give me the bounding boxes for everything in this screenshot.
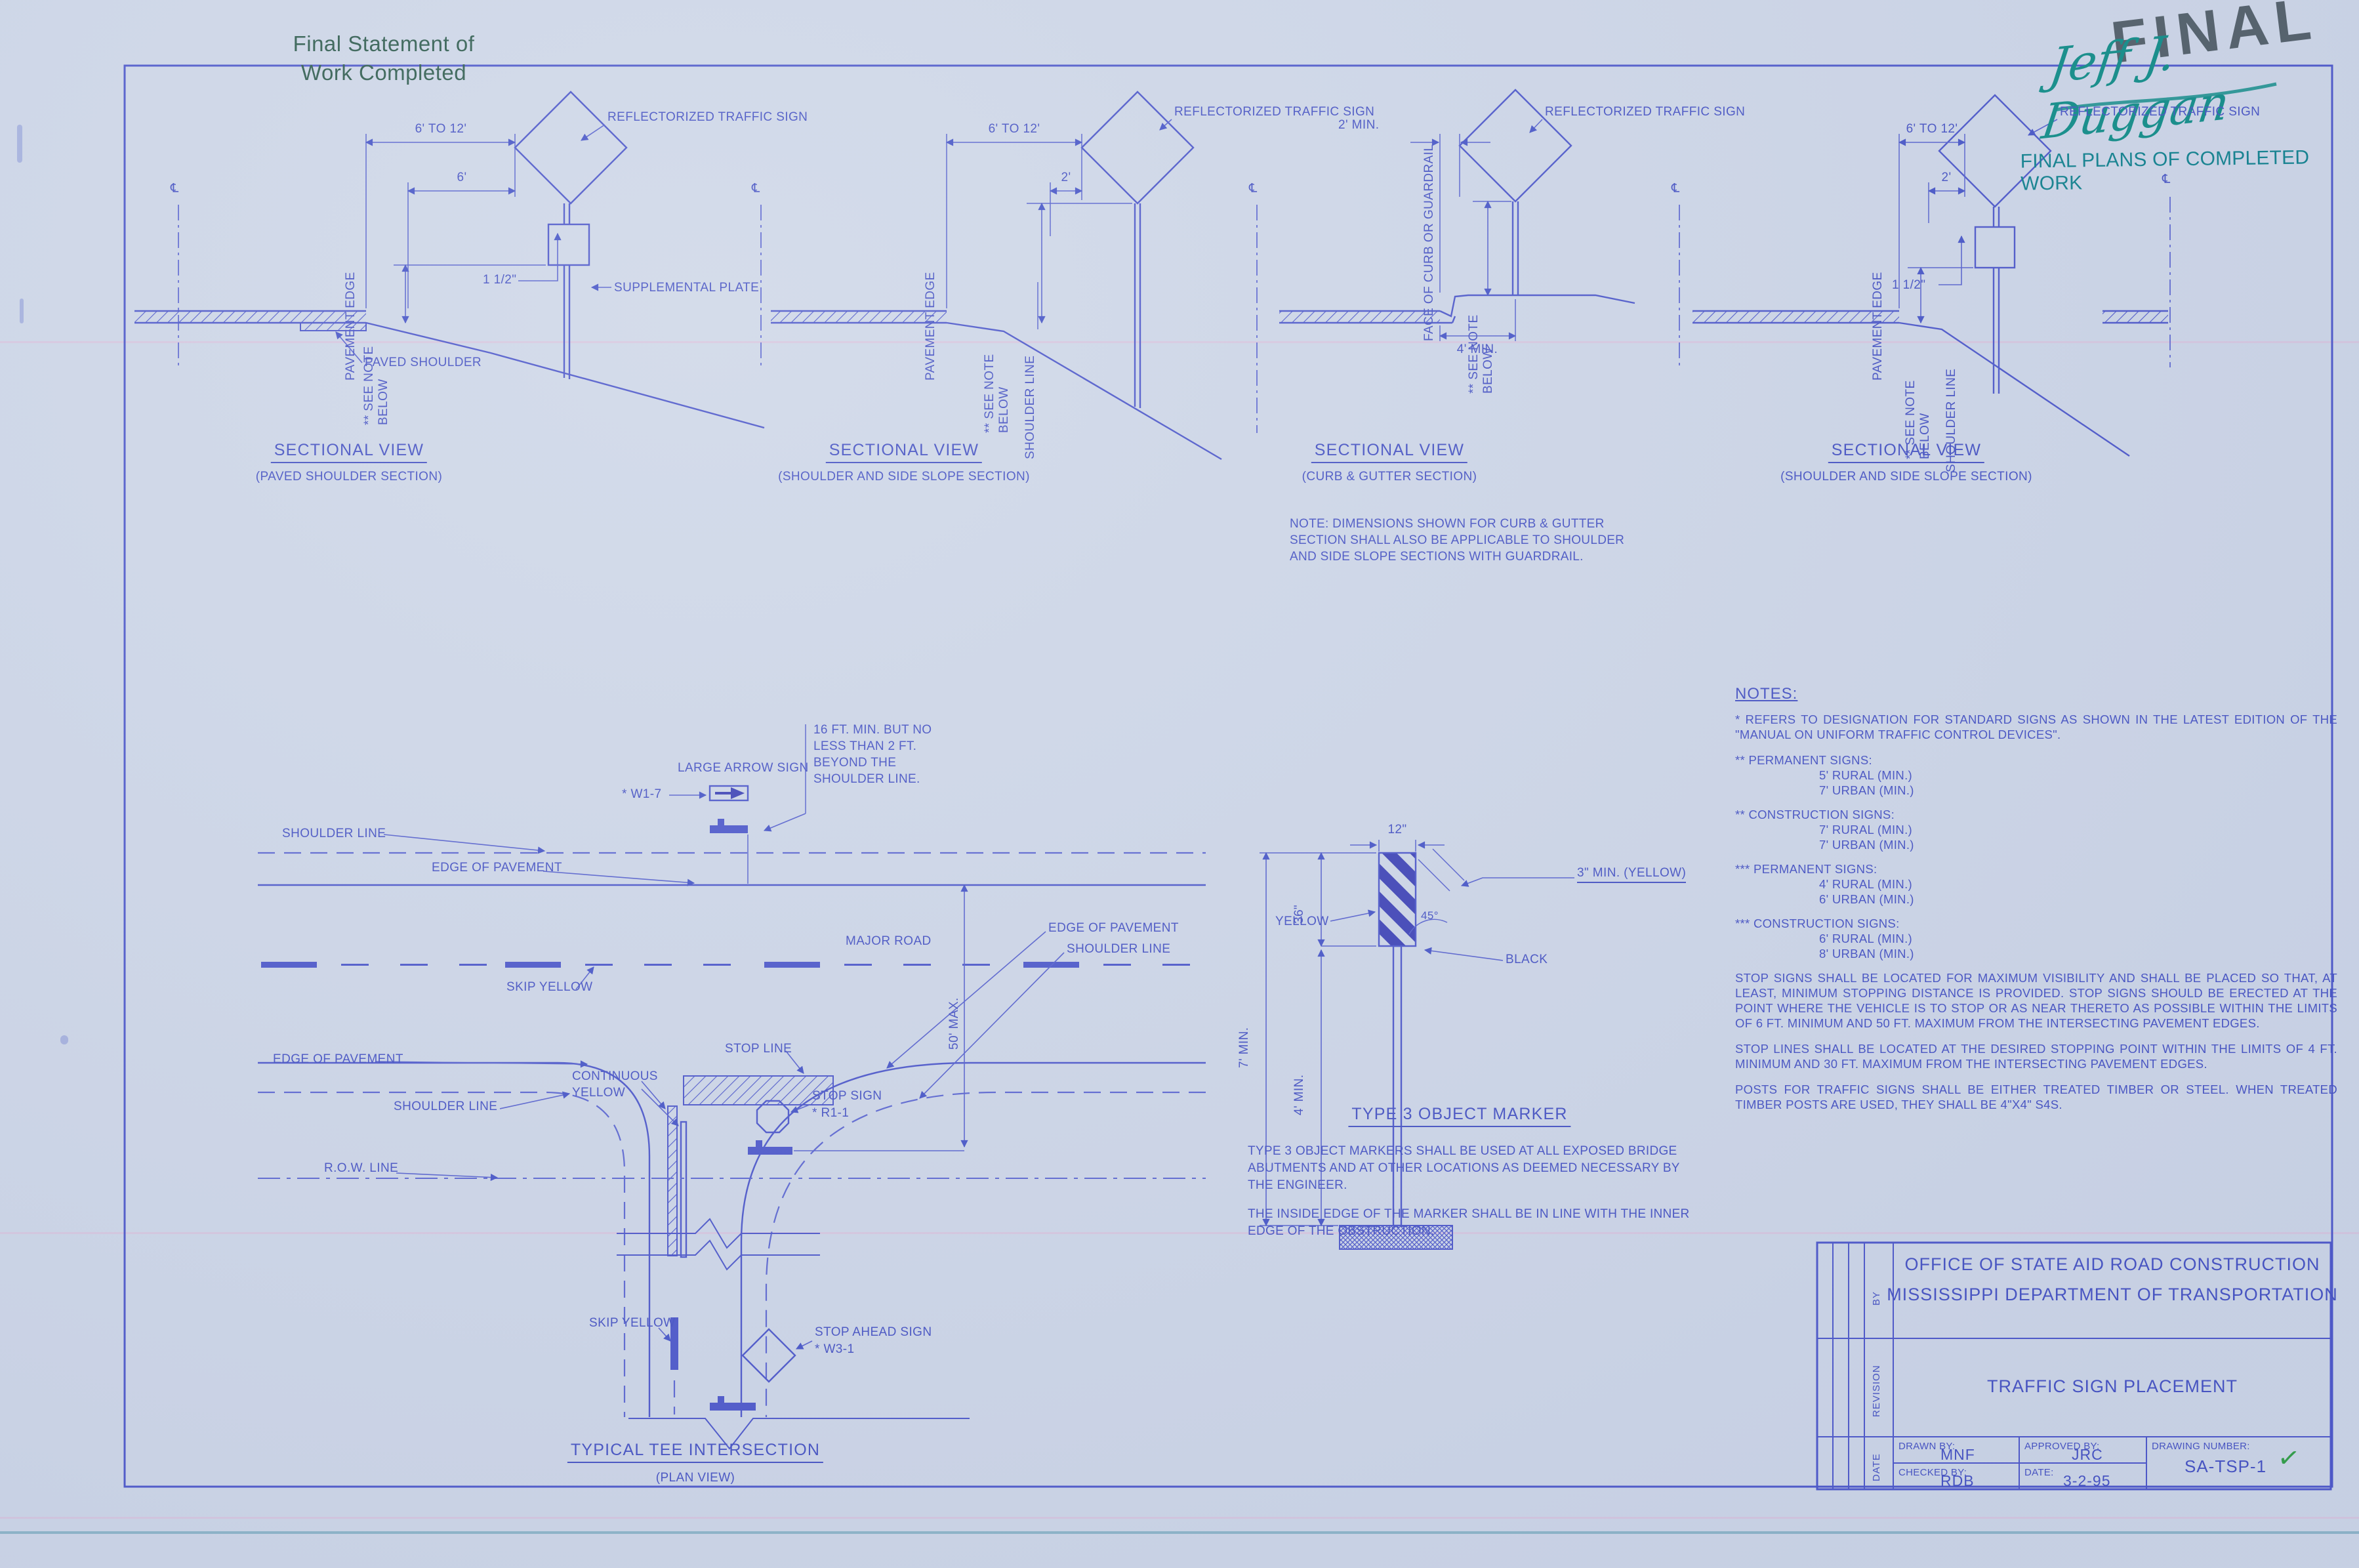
plan-major-road-label: MAJOR ROAD xyxy=(846,934,932,949)
marker-yellow-label: YELLOW xyxy=(1275,915,1329,929)
plan-stop-ahead-label: STOP AHEAD SIGN xyxy=(815,1325,932,1340)
v2-title: SECTIONAL VIEW xyxy=(826,441,982,463)
notes-ref: * REFERS TO DESIGNATION FOR STANDARD SIG… xyxy=(1735,712,2337,742)
plan-50max-dim: 50' MAX. xyxy=(947,997,962,1050)
green-checkmark: ✓ xyxy=(2276,1442,2302,1475)
v1-title: SECTIONAL VIEW xyxy=(271,441,427,463)
centerline-symbol: ℄ xyxy=(1249,181,1258,196)
v2-pavement-edge-label: PAVEMENT EDGE xyxy=(924,272,938,381)
agency-line2: MISSISSIPPI DEPARTMENT OF TRANSPORTATION xyxy=(1887,1285,2338,1305)
agency-line1: OFFICE OF STATE AID ROAD CONSTRUCTION xyxy=(1904,1254,2320,1275)
group-line: 7' RURAL (MIN.) xyxy=(1819,822,2337,837)
v1-dim-6: 6' xyxy=(457,171,467,185)
plan-w3-1-label: * W3-1 xyxy=(815,1342,854,1357)
notes-group-permanent-3star: *** PERMANENT SIGNS: 4' RURAL (MIN.) 6' … xyxy=(1735,861,2337,907)
marker-note-line: THE ENGINEER. xyxy=(1248,1177,1690,1194)
group-line: 7' URBAN (MIN.) xyxy=(1819,783,2337,798)
column-date-label: DATE xyxy=(1871,1453,1882,1481)
v4-dim-2: 2' xyxy=(1942,171,1952,185)
centerline-symbol: ℄ xyxy=(1672,181,1680,196)
marker-dim-7min: 7' MIN. xyxy=(1237,1027,1252,1068)
group-head: *** CONSTRUCTION SIGNS: xyxy=(1735,916,2337,931)
curb-note-line3: AND SIDE SLOPE SECTIONS WITH GUARDRAIL. xyxy=(1290,548,1624,565)
plan-edge-pavement-right-label: EDGE OF PAVEMENT xyxy=(1048,921,1179,936)
group-head: ** PERMANENT SIGNS: xyxy=(1735,753,2337,768)
v2-see-note-label: ** SEE NOTE BELOW xyxy=(983,354,1012,433)
plan-row-line-label: R.O.W. LINE xyxy=(324,1161,398,1176)
marker-black-label: BLACK xyxy=(1506,953,1548,967)
curb-gutter-note: NOTE: DIMENSIONS SHOWN FOR CURB & GUTTER… xyxy=(1290,516,1624,565)
v1-dim-6to12: 6' TO 12' xyxy=(415,122,467,136)
date-value: 3-2-95 xyxy=(2063,1472,2110,1490)
notes-stop-lines: STOP LINES SHALL BE LOCATED AT THE DESIR… xyxy=(1735,1041,2337,1071)
group-head: ** CONSTRUCTION SIGNS: xyxy=(1735,807,2337,822)
plan-shoulder-line-left-label: SHOULDER LINE xyxy=(394,1100,497,1114)
column-by-label: BY xyxy=(1871,1291,1882,1306)
setback-line3: BEYOND THE xyxy=(813,754,932,771)
v3-dim-2min: 2' MIN. xyxy=(1338,118,1379,133)
approved-by-value: JRC xyxy=(2072,1446,2103,1464)
v3-curb-face-label: FACE OF CURB OR GUARDRAIL xyxy=(1422,144,1437,341)
curb-note-line2: SECTION SHALL ALSO BE APPLICABLE TO SHOU… xyxy=(1290,532,1624,548)
sheet-title: TRAFFIC SIGN PLACEMENT xyxy=(1987,1376,2238,1397)
v4-reflectorized-sign-label: REFLECTORIZED TRAFFIC SIGN xyxy=(2060,105,2260,119)
marker-note-line: THE INSIDE EDGE OF THE MARKER SHALL BE I… xyxy=(1248,1206,1690,1223)
v1-subtitle: (PAVED SHOULDER SECTION) xyxy=(256,470,442,484)
column-revision-label: REVISION xyxy=(1871,1365,1882,1417)
spacer xyxy=(1248,1194,1690,1206)
plan-edge-pavement-top-label: EDGE OF PAVEMENT xyxy=(432,861,562,875)
final-statement-stamp-line2: Work Completed xyxy=(301,60,466,85)
v1-supplemental-plate-label: SUPPLEMENTAL PLATE xyxy=(614,281,759,295)
final-plans-stamp: FINAL PLANS OF COMPLETED WORK xyxy=(2021,146,2359,195)
v4-subtitle: (SHOULDER AND SIDE SLOPE SECTION) xyxy=(1780,470,2032,484)
drawing-number-label: DRAWING NUMBER: xyxy=(2152,1441,2250,1452)
notes-stop-signs: STOP SIGNS SHALL BE LOCATED FOR MAXIMUM … xyxy=(1735,970,2337,1031)
group-line: 7' URBAN (MIN.) xyxy=(1819,837,2337,852)
plan-subtitle: (PLAN VIEW) xyxy=(656,1471,735,1485)
v4-dim-plate-gap: 1 1/2" xyxy=(1892,278,1925,293)
v1-reflectorized-sign-label: REFLECTORIZED TRAFFIC SIGN xyxy=(607,110,808,125)
plan-edge-pavement-left-label: EDGE OF PAVEMENT xyxy=(273,1052,403,1067)
v4-dim-6to12: 6' TO 12' xyxy=(1906,122,1958,136)
v2-dim-6to12: 6' TO 12' xyxy=(989,122,1040,136)
v2-dim-2: 2' xyxy=(1061,171,1071,185)
setback-line4: SHOULDER LINE. xyxy=(813,771,932,787)
setback-line2: LESS THAN 2 FT. xyxy=(813,738,932,754)
marker-note-line: EDGE OF THE OBSTRUCTION. xyxy=(1248,1223,1690,1240)
v1-pavement-edge-label: PAVEMENT EDGE xyxy=(344,272,358,381)
notes-group-permanent-2star: ** PERMANENT SIGNS: 5' RURAL (MIN.) 7' U… xyxy=(1735,753,2337,798)
notes-heading: NOTES: xyxy=(1735,686,2337,701)
v3-title: SECTIONAL VIEW xyxy=(1311,441,1467,463)
v3-see-note-line2: BELOW xyxy=(1481,314,1496,394)
plan-skip-yellow-bottom-label: SKIP YELLOW xyxy=(589,1316,675,1331)
group-line: 5' RURAL (MIN.) xyxy=(1819,768,2337,783)
sectional-view-1-linework xyxy=(134,92,764,428)
marker-title: TYPE 3 OBJECT MARKER xyxy=(1348,1105,1570,1127)
v2-subtitle: (SHOULDER AND SIDE SLOPE SECTION) xyxy=(778,470,1030,484)
v3-see-note-line1: ** SEE NOTE xyxy=(1467,314,1481,394)
plan-stop-line-label: STOP LINE xyxy=(725,1042,792,1056)
v1-dim-plate-gap: 1 1/2" xyxy=(483,273,516,287)
blueprint-sheet: Final Statement of Work Completed FINAL … xyxy=(0,0,2359,1568)
continuous-yellow-line2: YELLOW xyxy=(572,1084,658,1101)
v2-see-note-line2: BELOW xyxy=(997,354,1012,433)
checked-by-value: RDB xyxy=(1940,1472,1975,1490)
notes-group-construction-3star: *** CONSTRUCTION SIGNS: 6' RURAL (MIN.) … xyxy=(1735,916,2337,961)
marker-dim-4min: 4' MIN. xyxy=(1292,1075,1307,1115)
sectional-view-3-linework xyxy=(1257,90,1635,433)
curb-note-line1: NOTE: DIMENSIONS SHOWN FOR CURB & GUTTER xyxy=(1290,516,1624,532)
plan-skip-yellow-top-label: SKIP YELLOW xyxy=(506,980,592,995)
v4-title: SECTIONAL VIEW xyxy=(1828,441,1984,463)
plan-r1-1-label: * R1-1 xyxy=(812,1106,849,1121)
plan-title: TYPICAL TEE INTERSECTION xyxy=(567,1441,823,1463)
notes-section: NOTES: * REFERS TO DESIGNATION FOR STAND… xyxy=(1735,686,2337,1123)
continuous-yellow-line1: CONTINUOUS xyxy=(572,1068,658,1084)
marker-angle-label: 45° xyxy=(1421,909,1439,922)
plan-stop-sign-label: STOP SIGN xyxy=(812,1089,882,1104)
drawn-by-value: MNF xyxy=(1940,1446,1975,1464)
drawing-number-value: SA-TSP-1 xyxy=(2185,1456,2267,1477)
notes-group-construction-2star: ** CONSTRUCTION SIGNS: 7' RURAL (MIN.) 7… xyxy=(1735,807,2337,852)
plan-shoulder-line-top-label: SHOULDER LINE xyxy=(282,827,386,841)
centerline-symbol: ℄ xyxy=(171,181,179,196)
plan-w1-7-label: * W1-7 xyxy=(622,787,661,802)
marker-stripe-note: 3" MIN. (YELLOW) xyxy=(1577,866,1686,883)
v2-reflectorized-sign-label: REFLECTORIZED TRAFFIC SIGN xyxy=(1174,105,1374,119)
final-statement-stamp-line1: Final Statement of xyxy=(293,31,475,56)
v1-paved-shoulder-label: PAVED SHOULDER xyxy=(365,356,482,370)
v3-reflectorized-sign-label: REFLECTORIZED TRAFFIC SIGN xyxy=(1545,105,1745,119)
v3-subtitle: (CURB & GUTTER SECTION) xyxy=(1302,470,1477,484)
group-line: 6' RURAL (MIN.) xyxy=(1819,931,2337,946)
marker-note-line: TYPE 3 OBJECT MARKERS SHALL BE USED AT A… xyxy=(1248,1143,1690,1160)
group-head: *** PERMANENT SIGNS: xyxy=(1735,861,2337,877)
v2-shoulder-line-label: SHOULDER LINE xyxy=(1023,356,1038,459)
notes-posts: POSTS FOR TRAFFIC SIGNS SHALL BE EITHER … xyxy=(1735,1082,2337,1112)
plan-shoulder-line-right-label: SHOULDER LINE xyxy=(1067,942,1170,957)
group-line: 8' URBAN (MIN.) xyxy=(1819,946,2337,961)
tee-intersection-linework xyxy=(258,724,1206,1449)
plan-large-arrow-sign-label: LARGE ARROW SIGN xyxy=(678,761,809,775)
group-line: 6' URBAN (MIN.) xyxy=(1819,892,2337,907)
marker-note-line: ABUTMENTS AND AT OTHER LOCATIONS AS DEEM… xyxy=(1248,1160,1690,1177)
marker-notes: TYPE 3 OBJECT MARKERS SHALL BE USED AT A… xyxy=(1248,1143,1690,1240)
centerline-symbol: ℄ xyxy=(2162,172,2171,187)
date-label: DATE: xyxy=(2024,1467,2054,1478)
centerline-symbol: ℄ xyxy=(752,181,760,196)
group-line: 4' RURAL (MIN.) xyxy=(1819,877,2337,892)
plan-setback-note: 16 FT. MIN. BUT NO LESS THAN 2 FT. BEYON… xyxy=(813,722,932,787)
plan-continuous-yellow-label: CONTINUOUS YELLOW xyxy=(572,1068,658,1101)
marker-dim-12: 12" xyxy=(1387,823,1406,837)
v4-pavement-edge-label: PAVEMENT EDGE xyxy=(1871,272,1885,381)
v2-see-note-line1: ** SEE NOTE xyxy=(983,354,997,433)
v3-see-note-label: ** SEE NOTE BELOW xyxy=(1467,314,1496,394)
setback-line1: 16 FT. MIN. BUT NO xyxy=(813,722,932,738)
